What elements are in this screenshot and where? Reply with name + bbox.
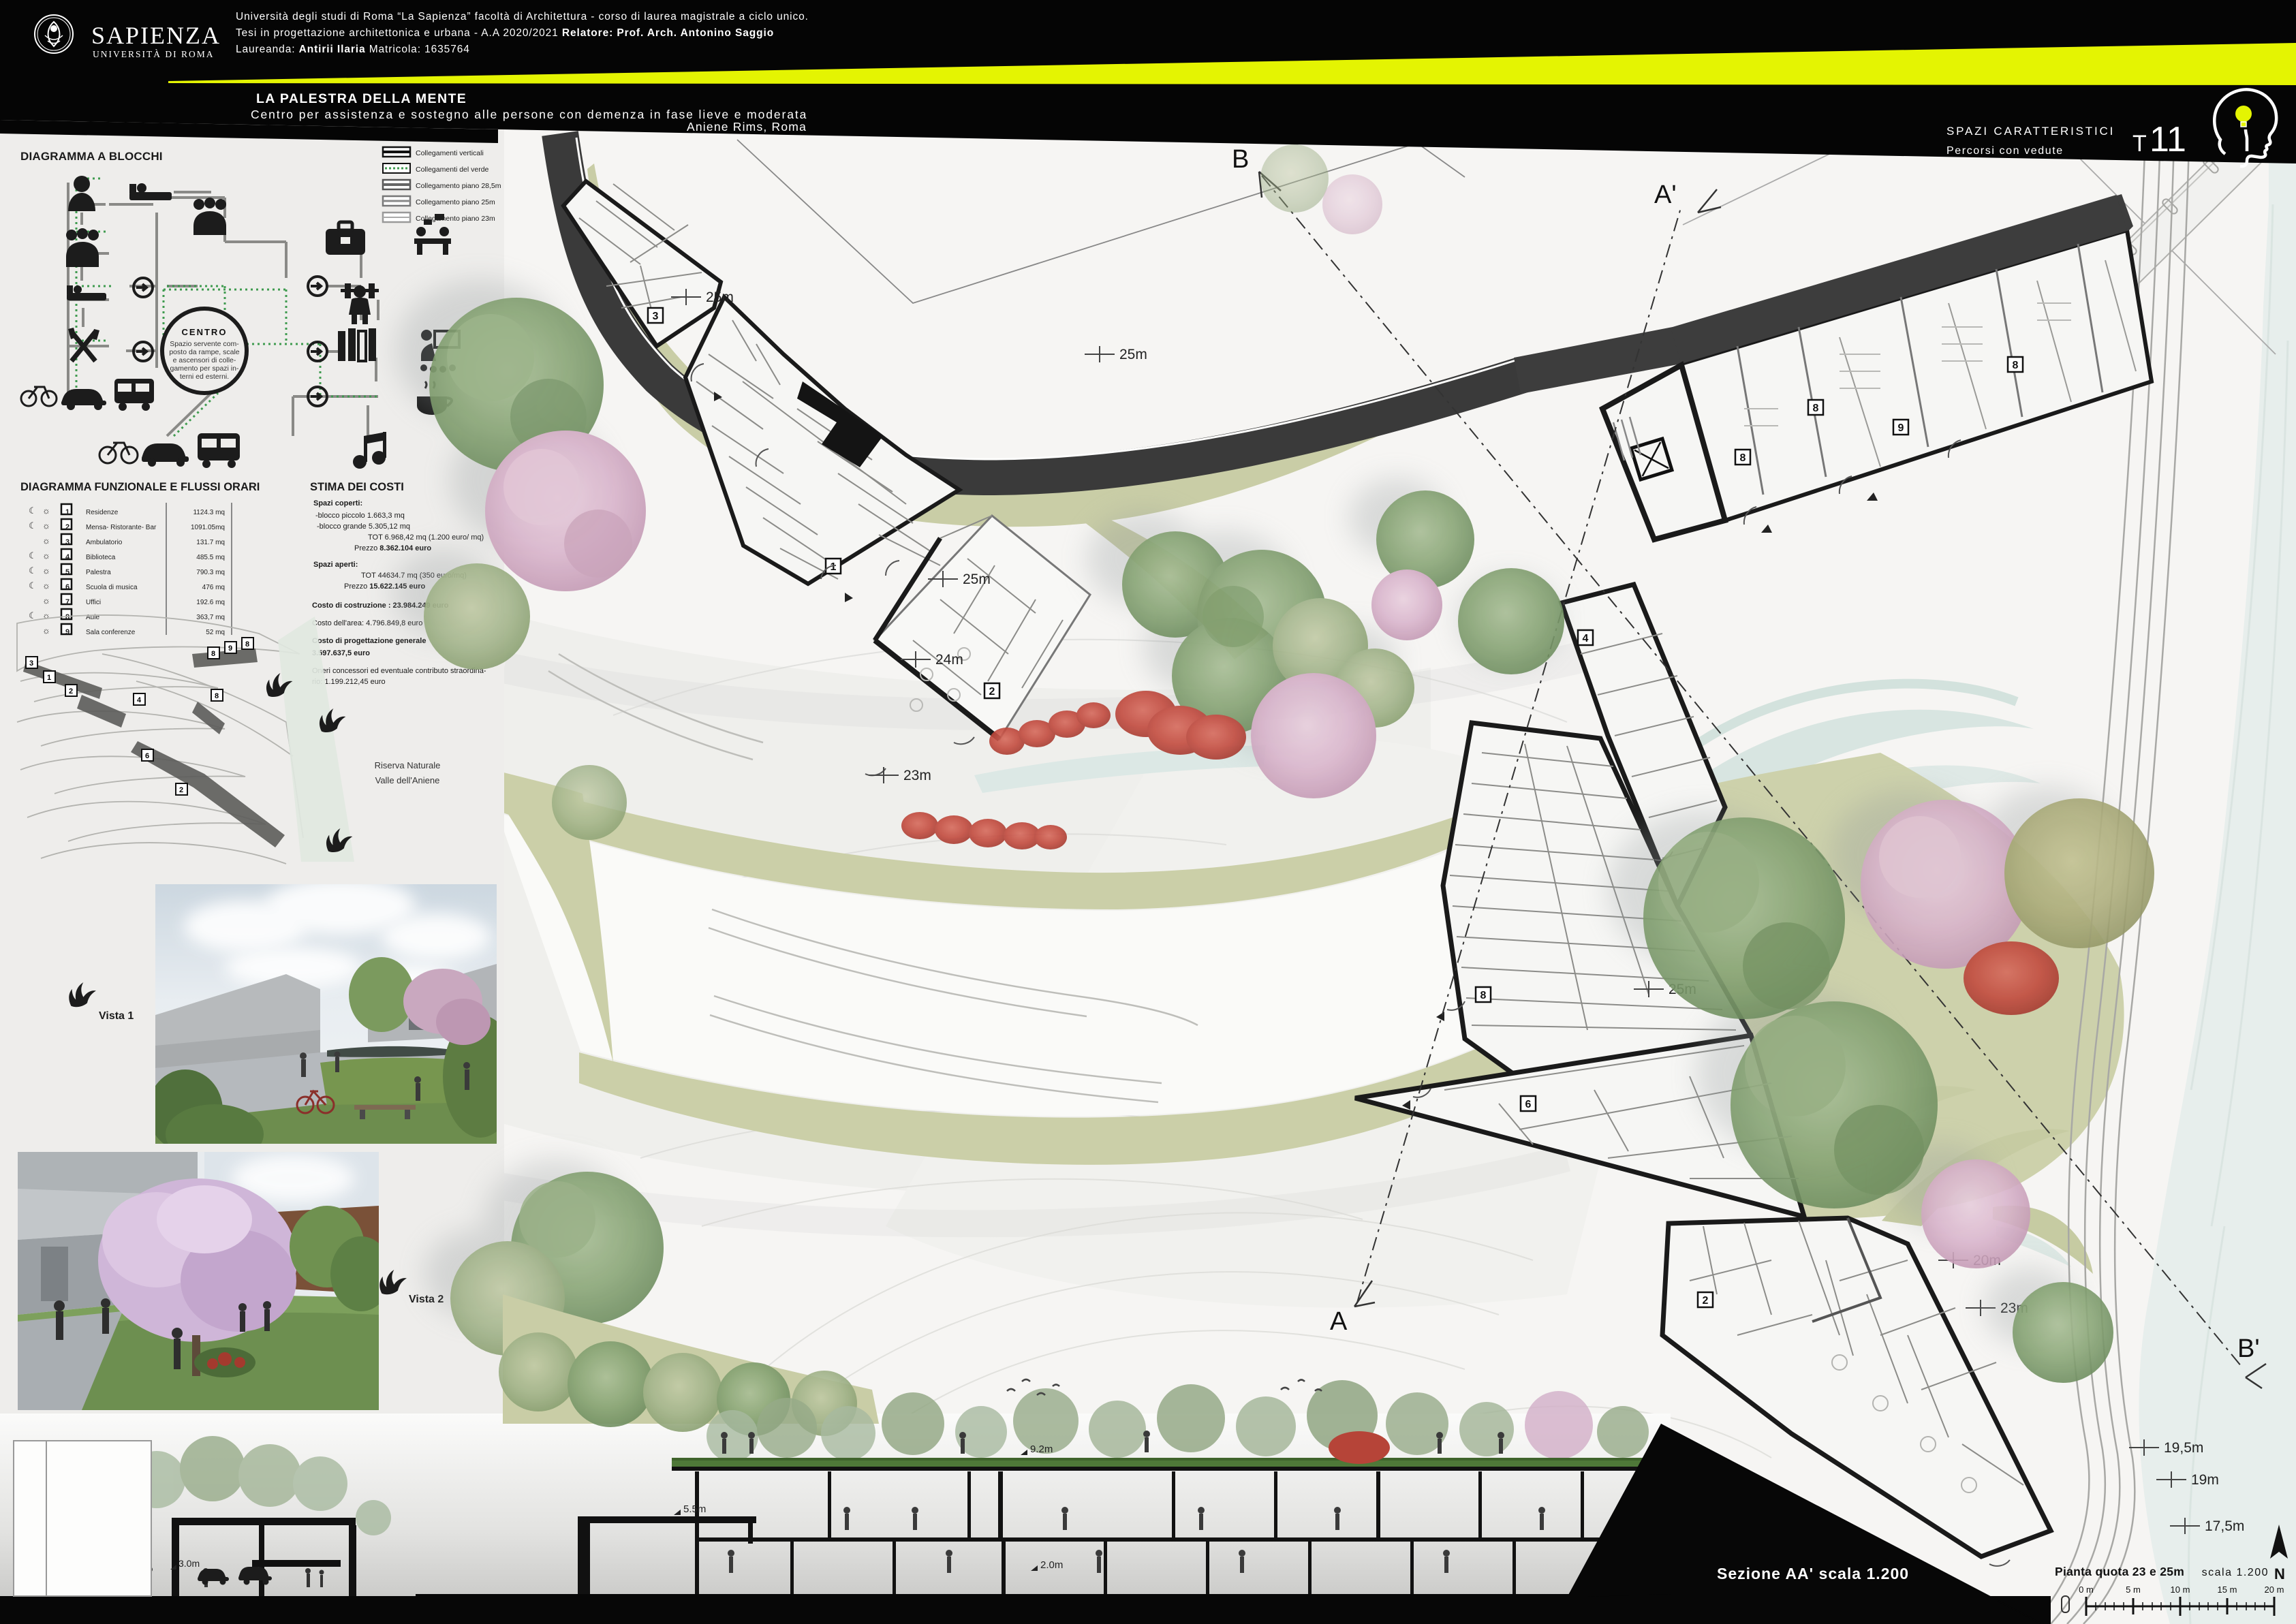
- svg-text:1124.3 mq: 1124.3 mq: [193, 509, 225, 516]
- svg-text:8: 8: [2013, 360, 2019, 371]
- svg-text:8: 8: [65, 613, 69, 621]
- svg-text:DIAGRAMMA FUNZIONALE E FLUSSI: DIAGRAMMA FUNZIONALE E FLUSSI ORARI: [20, 481, 260, 493]
- svg-text:131.7 mq: 131.7 mq: [196, 539, 225, 546]
- svg-text:23m: 23m: [903, 768, 931, 783]
- svg-text:☾: ☾: [29, 505, 37, 516]
- svg-text:-blocco piccolo 1.663,3 mq: -blocco piccolo 1.663,3 mq: [315, 512, 405, 520]
- svg-text:Percorsi con vedute: Percorsi con vedute: [1946, 145, 2064, 157]
- svg-text:Aniene Rims, Roma: Aniene Rims, Roma: [687, 120, 807, 134]
- svg-text:Costo di progettazione general: Costo di progettazione generale: [312, 637, 426, 645]
- svg-text:24m: 24m: [935, 652, 963, 668]
- svg-text:5 m: 5 m: [2126, 1584, 2141, 1595]
- svg-text:8: 8: [211, 650, 215, 658]
- svg-text:Collegamento piano 25m: Collegamento piano 25m: [416, 198, 495, 206]
- svg-text:Laureanda: Antirii Ilaria Mat: Laureanda: Antirii Ilaria Matricola: 163…: [236, 44, 470, 55]
- svg-text:B: B: [1232, 145, 1249, 174]
- svg-text:19m: 19m: [2191, 1472, 2219, 1488]
- svg-text:8: 8: [1740, 452, 1746, 464]
- svg-text:Riserva Naturale: Riserva Naturale: [375, 760, 441, 770]
- svg-text:3: 3: [653, 311, 659, 322]
- svg-text:Collegamenti del verde: Collegamenti del verde: [416, 166, 489, 174]
- svg-text:DIAGRAMMA A BLOCCHI: DIAGRAMMA A BLOCCHI: [20, 150, 163, 163]
- svg-text:Pianta quota 23 e 25m: Pianta quota 23 e 25m: [2055, 1565, 2184, 1578]
- svg-text:363,7 mq: 363,7 mq: [196, 614, 225, 621]
- svg-text:UNIVERSITÀ DI ROMA: UNIVERSITÀ DI ROMA: [93, 49, 215, 59]
- svg-text:☾: ☾: [29, 550, 37, 561]
- svg-text:☼: ☼: [42, 580, 50, 591]
- svg-text:1: 1: [831, 561, 837, 573]
- svg-text:5.5m: 5.5m: [683, 1503, 706, 1515]
- svg-text:Biblioteca: Biblioteca: [86, 554, 116, 561]
- svg-text:476 mq: 476 mq: [202, 584, 225, 591]
- svg-text:T: T: [2132, 131, 2147, 157]
- svg-text:52 mq: 52 mq: [206, 629, 225, 636]
- svg-text:10 m: 10 m: [2171, 1584, 2190, 1595]
- svg-text:Palestra: Palestra: [86, 569, 111, 576]
- svg-text:☼: ☼: [42, 550, 50, 561]
- svg-text:posto da rampe, scale: posto da rampe, scale: [169, 348, 239, 356]
- svg-text:-blocco grande 5.305,12 mq: -blocco grande 5.305,12 mq: [317, 522, 410, 531]
- svg-text:2: 2: [69, 687, 73, 696]
- svg-text:9: 9: [1898, 422, 1904, 434]
- svg-text:1091.05mq: 1091.05mq: [191, 524, 225, 531]
- svg-text:Ambulatorio: Ambulatorio: [86, 539, 123, 546]
- svg-text:1: 1: [47, 674, 51, 682]
- svg-text:Sezione AA' scala 1.200: Sezione AA' scala 1.200: [1717, 1565, 1909, 1582]
- svg-text:Vista 1: Vista 1: [99, 1010, 134, 1022]
- svg-text:2.0m: 2.0m: [1040, 1559, 1063, 1571]
- svg-text:25m: 25m: [963, 572, 991, 587]
- svg-text:A: A: [1330, 1307, 1348, 1336]
- svg-text:1: 1: [65, 508, 69, 516]
- svg-text:TOT 6.968,42 mq (1.200 euro/: TOT 6.968,42 mq (1.200 euro/ mq): [368, 533, 484, 542]
- svg-text:Tesi in progettazione architet: Tesi in progettazione architettonica e u…: [236, 27, 774, 39]
- svg-text:Mensa- Ristorante- Bar: Mensa- Ristorante- Bar: [86, 524, 157, 531]
- svg-text:STIMA DEI COSTI: STIMA DEI COSTI: [310, 481, 404, 493]
- svg-text:8: 8: [215, 692, 219, 700]
- svg-text:Scuola di musica: Scuola di musica: [86, 584, 138, 591]
- svg-text:terni ed esterni.: terni ed esterni.: [180, 373, 229, 381]
- svg-text:Collegamento piano 28,5m: Collegamento piano 28,5m: [416, 182, 501, 190]
- svg-text:Spazi coperti:: Spazi coperti:: [313, 499, 362, 507]
- svg-text:e ascensori di colle-: e ascensori di colle-: [173, 356, 236, 364]
- svg-text:20 m: 20 m: [2265, 1584, 2284, 1595]
- svg-text:2: 2: [989, 686, 995, 698]
- svg-text:4: 4: [137, 696, 142, 704]
- svg-text:☾: ☾: [29, 520, 37, 531]
- svg-text:Oneri concessori ed eventuale: Oneri concessori ed eventuale contributo…: [312, 667, 486, 675]
- svg-text:Spazi aperti:: Spazi aperti:: [313, 561, 358, 569]
- svg-text:2: 2: [65, 523, 69, 531]
- svg-text:25m: 25m: [706, 290, 734, 305]
- svg-text:Valle dell'Aniene: Valle dell'Aniene: [375, 775, 440, 785]
- svg-text:CENTRO: CENTRO: [182, 327, 228, 337]
- svg-text:☼: ☼: [42, 565, 50, 576]
- svg-text:192.6 mq: 192.6 mq: [196, 599, 225, 606]
- svg-text:8: 8: [1813, 403, 1819, 414]
- svg-text:17,5m: 17,5m: [2205, 1518, 2244, 1534]
- svg-text:2: 2: [179, 786, 183, 794]
- svg-text:7: 7: [65, 598, 69, 606]
- svg-text:8: 8: [1480, 990, 1487, 1001]
- svg-text:19,5m: 19,5m: [2164, 1440, 2203, 1456]
- svg-text:3: 3: [29, 659, 33, 668]
- svg-text:790.3 mq: 790.3 mq: [196, 569, 225, 576]
- svg-text:Residenze: Residenze: [86, 509, 119, 516]
- svg-text:6: 6: [1525, 1099, 1532, 1110]
- svg-text:3: 3: [65, 538, 69, 546]
- svg-text:4: 4: [1583, 633, 1589, 644]
- svg-text:B': B': [2237, 1334, 2260, 1363]
- svg-text:☾: ☾: [29, 565, 37, 576]
- svg-text:485.5 mq: 485.5 mq: [196, 554, 225, 561]
- svg-text:25m: 25m: [1119, 347, 1147, 362]
- svg-text:A': A': [1654, 181, 1677, 209]
- svg-text:SPAZI CARATTERISTICI: SPAZI CARATTERISTICI: [1946, 125, 2115, 138]
- svg-text:9: 9: [228, 644, 232, 653]
- svg-text:0 m: 0 m: [2079, 1584, 2094, 1595]
- svg-text:11: 11: [2150, 120, 2186, 159]
- svg-text:Uffici: Uffici: [86, 599, 101, 606]
- svg-text:gamento per spazi in-: gamento per spazi in-: [170, 364, 239, 373]
- svg-text:Centro per assistenza e sosteg: Centro per assistenza e sostegno alle pe…: [251, 108, 807, 121]
- svg-text:Università degli studi di Roma: Università degli studi di Roma “La Sapie…: [236, 11, 809, 22]
- svg-text:Collegamenti verticali: Collegamenti verticali: [416, 149, 484, 157]
- svg-text:☼: ☼: [42, 505, 50, 516]
- svg-text:5: 5: [65, 568, 69, 576]
- svg-text:LA PALESTRA DELLA MENTE: LA PALESTRA DELLA MENTE: [256, 91, 467, 106]
- svg-text:☼: ☼: [42, 595, 50, 606]
- svg-text:SAPIENZA: SAPIENZA: [91, 22, 221, 49]
- svg-text:☾: ☾: [29, 610, 37, 621]
- svg-text:3.0m: 3.0m: [179, 1558, 200, 1569]
- svg-text:☼: ☼: [42, 625, 50, 636]
- svg-text:9: 9: [65, 628, 69, 636]
- svg-text:9.2m: 9.2m: [1030, 1443, 1053, 1455]
- svg-text:Sala conferenze: Sala conferenze: [86, 629, 136, 636]
- svg-text:6: 6: [145, 752, 149, 760]
- svg-text:Spazio servente com-: Spazio servente com-: [170, 340, 239, 348]
- svg-text:8: 8: [245, 640, 249, 649]
- svg-text:scala 1.200: scala 1.200: [2202, 1567, 2269, 1578]
- svg-text:15 m: 15 m: [2218, 1584, 2237, 1595]
- svg-text:2: 2: [1703, 1295, 1709, 1307]
- svg-text:Prezzo 8.362.104 euro: Prezzo 8.362.104 euro: [354, 544, 431, 552]
- svg-text:☾: ☾: [29, 580, 37, 591]
- svg-text:6: 6: [65, 583, 69, 591]
- svg-text:N: N: [2274, 1565, 2285, 1582]
- svg-text:4: 4: [65, 553, 70, 561]
- svg-text:☼: ☼: [42, 535, 50, 546]
- svg-text:☼: ☼: [42, 520, 50, 531]
